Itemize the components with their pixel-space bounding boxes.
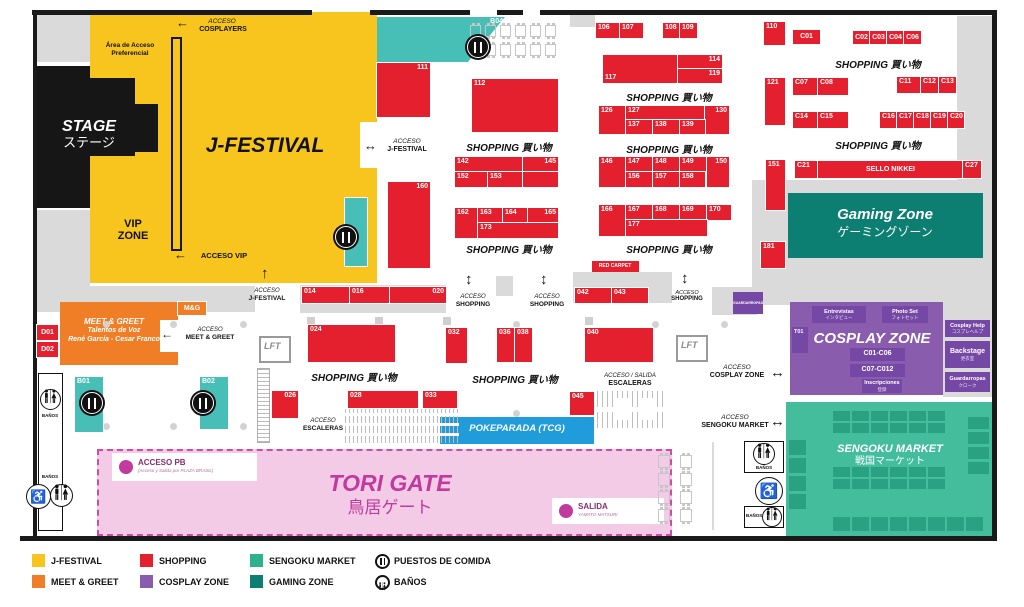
food-table-icon xyxy=(500,44,511,56)
shopping-heading: SHOPPING 買い物 xyxy=(311,369,397,384)
acceso-shopping-1b: SHOPPING xyxy=(456,301,490,308)
food-table-icon xyxy=(485,25,496,37)
booth-032: 032 xyxy=(446,328,467,363)
booth-160: 160 xyxy=(388,182,430,268)
booth-C12: C12 xyxy=(921,77,939,93)
booth-C15: C15 xyxy=(818,112,848,128)
booth-170: 170 xyxy=(707,205,731,220)
arrow-updown-icon: ↕ xyxy=(540,272,548,287)
booth-126: 126 xyxy=(599,106,626,134)
booth-043: 043 xyxy=(612,288,648,303)
vip-zone-label-1: VIP xyxy=(124,218,142,231)
shopping-heading: SHOPPING 買い物 xyxy=(472,371,558,386)
booth-unlabeled xyxy=(523,172,558,187)
acceso-jfestival-mid-1: ACCESO xyxy=(393,138,420,145)
cosplay-area-backstage: Backstage更衣室 xyxy=(945,341,990,368)
legend-label: COSPLAY ZONE xyxy=(159,577,229,587)
market-stall xyxy=(789,476,806,491)
booth-142: 142 xyxy=(455,157,523,172)
booth-162: 162 xyxy=(455,208,478,238)
booth-147: 147 xyxy=(626,157,653,172)
exit-dot xyxy=(559,504,573,518)
booth-C20: C20 xyxy=(948,112,964,128)
market-stall xyxy=(890,423,907,433)
food-table-icon xyxy=(545,25,556,37)
food-table-icon xyxy=(658,509,670,522)
booth-109: 109 xyxy=(680,23,697,38)
legend-label: J-FESTIVAL xyxy=(51,556,102,566)
restroom-persons-icon xyxy=(53,484,70,507)
wall-top xyxy=(32,10,312,15)
restroom-label: BAÑOS xyxy=(746,513,762,518)
gaming-zone-subtitle: ゲーミングゾーン xyxy=(837,226,933,240)
booth-177: 177 xyxy=(626,220,707,236)
wall-top xyxy=(540,10,997,15)
booth-151: 151 xyxy=(766,160,785,210)
food-stand-icon xyxy=(465,34,491,60)
market-stall xyxy=(890,467,907,477)
floor-block xyxy=(37,14,90,62)
market-stall xyxy=(968,447,989,459)
cosplay-area-guardarropas: Guardarropasクローク xyxy=(945,372,990,392)
booth-045: 045 xyxy=(570,392,594,415)
restroom-label: BAÑOS xyxy=(42,474,58,479)
shopping-heading: SHOPPING 買い物 xyxy=(626,89,712,104)
stairs-escaleras xyxy=(597,390,667,428)
meet-greet-title: MEET & GREET xyxy=(84,317,144,326)
lift-label: LFT xyxy=(681,340,698,350)
market-stall xyxy=(871,411,888,421)
acceso-jfestival-up-1: ACCESO xyxy=(254,288,279,295)
acceso-jfestival-up-2: J-FESTIVAL xyxy=(249,295,286,302)
stage-area xyxy=(135,104,158,152)
booth-C04: C04 xyxy=(887,31,904,44)
booth-111: 111 xyxy=(377,63,430,117)
acceso-cosplay-1: ACCESO xyxy=(723,364,750,371)
booth-148: 148 xyxy=(653,157,680,172)
pillar xyxy=(513,321,520,328)
booth-026: 026 xyxy=(272,391,298,418)
booth-024: 024 xyxy=(308,325,395,362)
booth-107: 107 xyxy=(620,23,643,38)
legend-label: SENGOKU MARKET xyxy=(269,556,356,566)
cosplay-area-cosplay-help: Cosplay Helpコスプレヘルプ xyxy=(945,320,990,337)
food-table-icon xyxy=(658,455,670,468)
market-stall xyxy=(789,494,806,509)
market-stall xyxy=(947,517,964,531)
booth-C07: C07 xyxy=(793,78,818,95)
food-table-icon xyxy=(680,455,692,468)
shopping-heading: SHOPPING 買い物 xyxy=(626,141,712,156)
arrow-updown-icon: ↕ xyxy=(681,271,689,286)
cosplay-area-c07-c012: C07-C012 xyxy=(850,364,905,377)
acceso-escaleras-1: ACCESO xyxy=(310,418,335,425)
entrance-dot xyxy=(119,460,133,474)
market-stall xyxy=(928,479,945,489)
legend-swatch xyxy=(250,575,263,588)
area-preferencial-2: Preferencial xyxy=(111,50,148,57)
cosplay-area-c01-c06: C01-C06 xyxy=(850,348,905,361)
stage-subtitle: ステージ xyxy=(63,136,115,151)
booth-108: 108 xyxy=(663,23,680,38)
shopping-heading: SHOPPING 買い物 xyxy=(835,56,921,71)
booth-127: 127 xyxy=(626,106,705,120)
floor-block xyxy=(570,13,595,27)
legend-swatch xyxy=(32,554,45,567)
booth-016: 016 xyxy=(350,287,390,303)
market-stall xyxy=(928,517,945,531)
market-stall xyxy=(928,411,945,421)
booth-C03: C03 xyxy=(870,31,887,44)
booth-145: 145 xyxy=(523,157,558,172)
booth-C08: C08 xyxy=(818,78,848,95)
tori-gate-title: TORI GATE xyxy=(328,470,451,496)
booth-167: 167 xyxy=(626,205,653,220)
event-floor-plan: STAGE ステージ Gaming Zone ゲーミングゾーン COSPLAY … xyxy=(0,0,1024,607)
acceso-meet-2: MEET & GREET xyxy=(186,334,235,341)
booth-153: 153 xyxy=(488,172,523,187)
booth-121: 121 xyxy=(765,78,785,125)
arrow-up-icon: ↑ xyxy=(261,266,269,281)
food-stand-icon xyxy=(79,390,105,416)
pillar xyxy=(652,321,659,328)
meet-greet-line2: Talentos de Voz xyxy=(88,327,141,335)
booth-C18: C18 xyxy=(914,112,931,128)
booth-C16: C16 xyxy=(880,112,897,128)
stage-title: STAGE xyxy=(62,118,116,136)
cosplay-area-entrevistas: Entrevistasインタビュー xyxy=(812,306,866,323)
restroom-persons-icon xyxy=(765,507,779,527)
area-preferencial-1: Área de Acceso xyxy=(106,42,155,49)
pillar xyxy=(170,423,177,430)
booth-138: 138 xyxy=(653,120,680,134)
legend-swatch xyxy=(32,575,45,588)
booth-146: 146 xyxy=(599,157,626,187)
tori-gate-subtitle: 鳥居ゲート xyxy=(348,498,433,518)
jfestival-title: J-FESTIVAL xyxy=(206,134,325,158)
cosplay-area-inscripciones: Inscripciones登録 xyxy=(862,379,902,393)
food-table-icon xyxy=(500,25,511,37)
floor-block xyxy=(496,276,513,296)
booth-C06: C06 xyxy=(904,31,921,44)
arrow-leftright-icon: ↔ xyxy=(770,414,785,429)
acceso-meet-1: ACCESO xyxy=(197,327,222,334)
market-stall xyxy=(890,517,907,531)
booth-020: 020 xyxy=(390,287,446,303)
market-stall xyxy=(833,411,850,421)
booth-C02: C02 xyxy=(853,31,870,44)
legend-label: SHOPPING xyxy=(159,556,207,566)
restroom-icon xyxy=(762,507,782,527)
food-stand-icon xyxy=(375,554,390,569)
booth-D02: D02 xyxy=(37,342,58,357)
food-table-icon xyxy=(515,25,526,37)
acceso-jfestival-mid-2: J-FESTIVAL xyxy=(387,146,427,154)
booth-042: 042 xyxy=(575,288,611,303)
legend-label: GAMING ZONE xyxy=(269,577,334,587)
wheelchair-icon: ♿ xyxy=(755,477,783,505)
escalator xyxy=(257,368,270,443)
arrow-updown-icon: ↕ xyxy=(465,272,473,287)
stairs-landing xyxy=(641,398,654,420)
market-stall xyxy=(909,423,926,433)
booth-C01: C01 xyxy=(793,30,820,44)
market-stall xyxy=(852,411,869,421)
market-stall xyxy=(909,411,926,421)
pillar xyxy=(103,423,110,430)
acceso-cosplayers-2: COSPLAYERS xyxy=(199,26,247,34)
booth-119: 119 xyxy=(678,69,722,83)
booth-M&G: M&G xyxy=(178,302,206,315)
booth-164: 164 xyxy=(503,208,528,223)
market-stall xyxy=(909,517,926,531)
cosplay-area-photo-set: Photo Setフォトセット xyxy=(882,306,928,323)
restroom-label: BAÑOS xyxy=(756,465,772,470)
cosplay-area-guardarropas: GUARDARROPAS xyxy=(733,292,763,314)
legend-label: PUESTOS DE COMIDA xyxy=(394,556,491,566)
booth-181: 181 xyxy=(761,242,785,268)
acceso-shopping-3b: SHOPPING xyxy=(671,296,703,303)
cosplay-zone-title: COSPLAY ZONE xyxy=(814,330,931,347)
market-stall xyxy=(852,479,869,489)
food-table-icon xyxy=(530,44,541,56)
food-table-icon xyxy=(658,491,670,504)
booth-117: 117 xyxy=(603,55,678,83)
restroom-persons-icon xyxy=(756,443,772,465)
arrow-leftright-icon: ↔ xyxy=(770,365,785,380)
booth-040: 040 xyxy=(585,328,653,362)
food-stand-icon xyxy=(190,390,216,416)
pillar xyxy=(513,410,520,417)
arrow-leftright-icon: ↔ xyxy=(364,139,377,152)
booth-C19: C19 xyxy=(931,112,948,128)
booth-C17: C17 xyxy=(897,112,914,128)
booth-137: 137 xyxy=(626,120,653,134)
acceso-vip-label: ACCESO VIP xyxy=(201,252,247,261)
booth-014: 014 xyxy=(302,287,350,303)
acceso-shopping-1a: ACCESO xyxy=(460,294,485,301)
market-stall xyxy=(871,467,888,477)
restroom-icon xyxy=(375,575,390,590)
market-stall xyxy=(928,423,945,433)
pillar xyxy=(721,321,728,328)
salida-sublabel: YAMATO MATSURI xyxy=(578,512,618,517)
booth-114: 114 xyxy=(678,55,722,69)
pillar xyxy=(375,317,383,325)
arrow-left-icon: ← xyxy=(174,248,187,261)
divider-line xyxy=(712,442,714,530)
pillar xyxy=(103,321,110,328)
pillar xyxy=(585,317,593,325)
booth-C11: C11 xyxy=(897,77,921,93)
food-table-icon xyxy=(680,473,692,486)
legend-swatch xyxy=(140,575,153,588)
booth-150: 150 xyxy=(707,157,729,187)
legend-label: MEET & GREET xyxy=(51,577,119,587)
food-table-icon xyxy=(658,473,670,486)
legend-swatch xyxy=(250,554,263,567)
food-table-icon xyxy=(680,491,692,504)
cosplay-area-t01: T01 xyxy=(792,327,808,353)
market-stall xyxy=(833,467,850,477)
acceso-shopping-2a: ACCESO xyxy=(534,294,559,301)
sengoku-title: SENGOKU MARKET xyxy=(837,443,943,456)
acceso-shopping-2b: SHOPPING xyxy=(530,301,564,308)
market-stall xyxy=(871,517,888,531)
market-stall xyxy=(909,479,926,489)
market-stall xyxy=(968,417,989,429)
booth-C27: C27 xyxy=(963,161,981,178)
market-stall xyxy=(909,467,926,477)
stairs-landing xyxy=(617,398,630,420)
restroom-icon xyxy=(753,443,775,465)
legend-label: BAÑOS xyxy=(394,577,427,587)
booth-C13: C13 xyxy=(939,77,956,93)
red-carpet-label: RED CARPET xyxy=(599,264,632,270)
pillar xyxy=(443,317,451,325)
sengoku-subtitle: 戦国マーケット xyxy=(855,456,925,468)
wall-left xyxy=(33,10,37,538)
pillar xyxy=(240,423,247,430)
restroom-label: BAÑOS xyxy=(42,413,58,418)
acceso-escaleras-2: ESCALERAS xyxy=(303,425,343,432)
meet-greet-line3: René García - Cesar Franco xyxy=(68,336,160,344)
lift-label: LFT xyxy=(264,341,281,351)
market-stall xyxy=(852,517,869,531)
wall-top xyxy=(497,10,523,15)
market-stall xyxy=(833,423,850,433)
booth-168: 168 xyxy=(653,205,680,220)
market-stall xyxy=(871,423,888,433)
booth-C14: C14 xyxy=(793,112,818,128)
booth-166: 166 xyxy=(599,205,626,236)
acceso-pb-sublabel: (Acceso y Salida por PLAZA BRASIL) xyxy=(138,468,213,473)
pillar xyxy=(307,317,315,325)
booth-C21: C21 xyxy=(795,161,818,178)
booth-D01: D01 xyxy=(37,325,58,340)
market-stall xyxy=(833,517,850,531)
acceso-cosplayers-1: ACCESO xyxy=(208,18,235,25)
market-stall xyxy=(789,458,806,473)
acceso-salida-escaleras-1: ACCESO / SALIDA xyxy=(604,373,656,380)
market-stall xyxy=(871,479,888,489)
market-stall xyxy=(852,467,869,477)
legend-swatch xyxy=(140,554,153,567)
vip-zone-label-2: ZONE xyxy=(118,230,149,243)
market-stall xyxy=(890,411,907,421)
booth-036: 036 xyxy=(497,328,515,362)
booth-139: 139 xyxy=(680,120,705,134)
market-stall xyxy=(789,440,806,455)
pillar xyxy=(240,321,247,328)
booth-169: 169 xyxy=(680,205,707,220)
booth-110: 110 xyxy=(764,22,785,45)
booth-173: 173 xyxy=(478,223,558,238)
food-table-icon xyxy=(515,44,526,56)
stairs-wide xyxy=(345,409,459,443)
shopping-heading: SHOPPING 買い物 xyxy=(466,241,552,256)
restroom-icon xyxy=(40,389,61,410)
gaming-zone-title: Gaming Zone xyxy=(837,206,933,223)
food-table-icon xyxy=(545,44,556,56)
booth-130: 130 xyxy=(705,106,729,134)
market-stall xyxy=(852,423,869,433)
market-stall xyxy=(833,479,850,489)
booth-033: 033 xyxy=(423,391,457,408)
restroom-icon xyxy=(50,484,73,507)
wall-bottom xyxy=(20,536,997,541)
salida-label: SALIDA xyxy=(578,502,608,511)
booth-163: 163 xyxy=(478,208,503,223)
shopping-heading: SHOPPING 買い物 xyxy=(626,241,712,256)
restroom-persons-icon xyxy=(43,389,58,410)
market-stall xyxy=(968,462,989,474)
booth-149: 149 xyxy=(680,157,707,172)
booth-165: 165 xyxy=(528,208,558,223)
acceso-salida-escaleras-2: ESCALERAS xyxy=(608,380,651,388)
shopping-heading: SHOPPING 買い物 xyxy=(835,137,921,152)
booth-112: 112 xyxy=(472,79,558,132)
wall-top xyxy=(370,10,470,15)
arrow-left-icon: ← xyxy=(161,328,173,340)
booth-SELLO NIKKEI: SELLO NIKKEI xyxy=(818,161,963,178)
food-table-icon xyxy=(530,25,541,37)
market-stall xyxy=(890,479,907,489)
market-stall xyxy=(928,467,945,477)
booth-038: 038 xyxy=(515,328,532,362)
booth-157: 157 xyxy=(653,172,680,187)
pokeparada-label: POKEPARADA (TCG) xyxy=(469,424,565,435)
booth-156: 156 xyxy=(626,172,653,187)
acceso-pb-label: ACCESO PB xyxy=(138,458,186,467)
booth-106: 106 xyxy=(596,23,620,38)
arrow-left-icon: ← xyxy=(176,16,189,29)
booth-152: 152 xyxy=(455,172,488,187)
wall-right xyxy=(992,10,997,540)
acceso-sengoku-2: SENGOKU MARKET xyxy=(701,422,768,430)
floor-block xyxy=(37,210,90,286)
booth-028: 028 xyxy=(348,391,418,408)
acceso-cosplay-2: COSPLAY ZONE xyxy=(710,372,764,380)
wheelchair-icon: ♿ xyxy=(26,484,51,509)
market-stall xyxy=(966,517,983,531)
shopping-heading: SHOPPING 買い物 xyxy=(466,139,552,154)
food-stand-icon xyxy=(333,224,359,250)
booth-158: 158 xyxy=(680,172,705,187)
vip-queue-barrier xyxy=(171,37,182,251)
market-stall xyxy=(968,432,989,444)
food-table-icon xyxy=(680,509,692,522)
acceso-sengoku-1: ACCESO xyxy=(721,414,748,421)
